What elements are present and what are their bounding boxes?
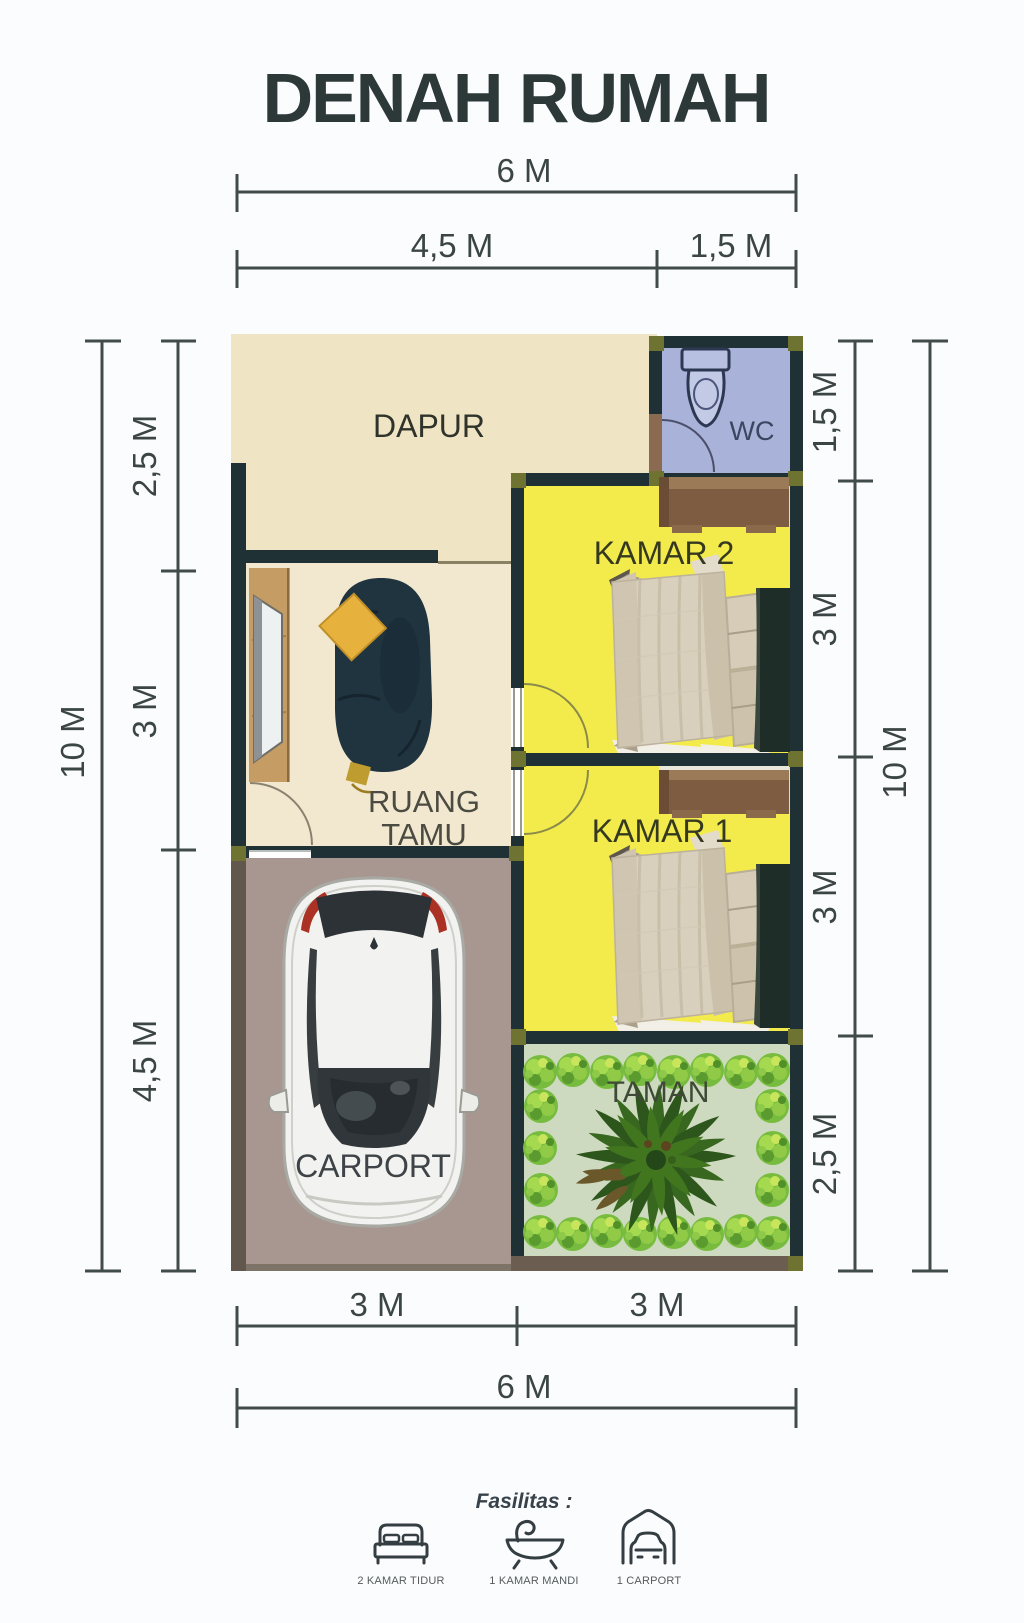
svg-text:10 M: 10 M	[876, 725, 913, 798]
svg-text:3 M: 3 M	[806, 591, 843, 646]
svg-text:1,5 M: 1,5 M	[806, 371, 843, 454]
svg-text:TAMU: TAMU	[381, 817, 467, 852]
svg-text:1 CARPORT: 1 CARPORT	[617, 1575, 682, 1587]
svg-text:RUANG: RUANG	[368, 784, 480, 819]
svg-text:2,5 M: 2,5 M	[126, 415, 163, 498]
svg-text:3 M: 3 M	[126, 683, 163, 738]
svg-text:6 M: 6 M	[496, 1368, 551, 1405]
svg-text:CARPORT: CARPORT	[295, 1148, 451, 1184]
svg-text:WC: WC	[730, 416, 775, 446]
svg-text:2 KAMAR TIDUR: 2 KAMAR TIDUR	[357, 1575, 444, 1587]
svg-text:3 M: 3 M	[349, 1286, 404, 1323]
svg-text:1 KAMAR MANDI: 1 KAMAR MANDI	[489, 1575, 578, 1587]
svg-text:Fasilitas :: Fasilitas :	[476, 1490, 573, 1513]
svg-text:KAMAR 1: KAMAR 1	[592, 813, 732, 849]
svg-text:DAPUR: DAPUR	[373, 408, 485, 444]
svg-text:6 M: 6 M	[496, 152, 551, 189]
svg-text:TAMAN: TAMAN	[607, 1076, 710, 1109]
svg-text:3 M: 3 M	[629, 1286, 684, 1323]
svg-text:4,5 M: 4,5 M	[411, 227, 494, 264]
svg-text:KAMAR 2: KAMAR 2	[594, 535, 734, 571]
svg-text:2,5 M: 2,5 M	[806, 1113, 843, 1196]
svg-text:10 M: 10 M	[54, 705, 91, 778]
svg-text:4,5 M: 4,5 M	[126, 1020, 163, 1103]
svg-text:3 M: 3 M	[806, 869, 843, 924]
svg-text:DENAH RUMAH: DENAH RUMAH	[263, 59, 770, 137]
svg-text:1,5 M: 1,5 M	[690, 227, 773, 264]
